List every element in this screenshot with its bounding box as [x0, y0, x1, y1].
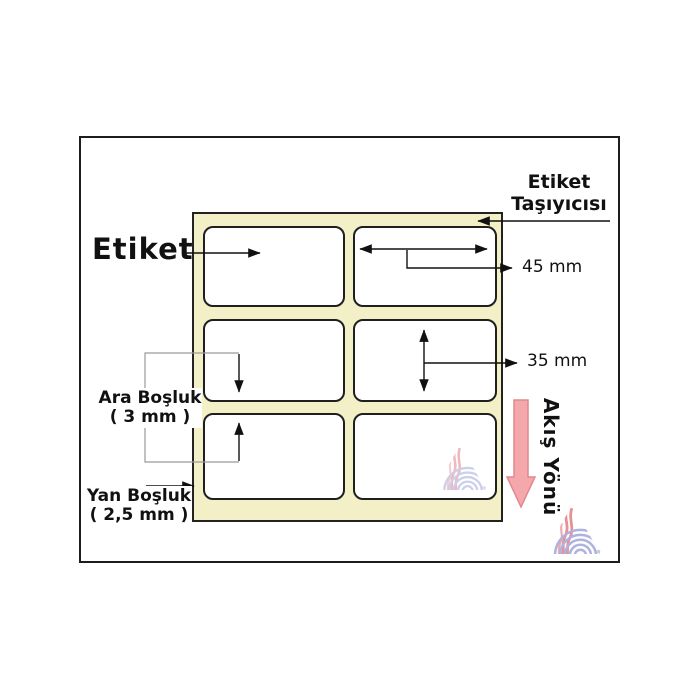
etiket-title: Etiket	[92, 233, 194, 266]
height-dimension-value: 35 mm	[527, 352, 587, 372]
carrier-caption-line1: Etiket	[503, 171, 615, 193]
carrier-caption-line2: Taşıyıcısı	[503, 193, 615, 215]
gap-caption-value: ( 3 mm )	[98, 408, 202, 427]
brand-watermark-icon	[430, 441, 487, 496]
gap-caption: Ara Boşluk ( 3 mm )	[98, 388, 202, 428]
width-dimension-value: 45 mm	[522, 258, 582, 278]
carrier-caption: Etiket Taşıyıcısı	[503, 171, 615, 215]
brand-watermark-icon	[539, 502, 602, 559]
side-margin-caption-value: ( 2,5 mm )	[86, 506, 192, 525]
gap-caption-label: Ara Boşluk	[98, 389, 202, 408]
side-margin-caption: Yan Boşluk ( 2,5 mm )	[86, 486, 192, 526]
label-cell	[203, 226, 345, 307]
label-cell	[353, 319, 497, 402]
label-cell	[353, 226, 497, 307]
label-cell	[203, 413, 345, 500]
flow-direction-label: Akış Yönü	[539, 398, 563, 516]
label-spec-diagram: Etiket Etiket Taşıyıcısı 45 mm 35 mm Ara…	[0, 0, 700, 700]
side-margin-caption-label: Yan Boşluk	[86, 487, 192, 506]
label-cell	[203, 319, 345, 402]
